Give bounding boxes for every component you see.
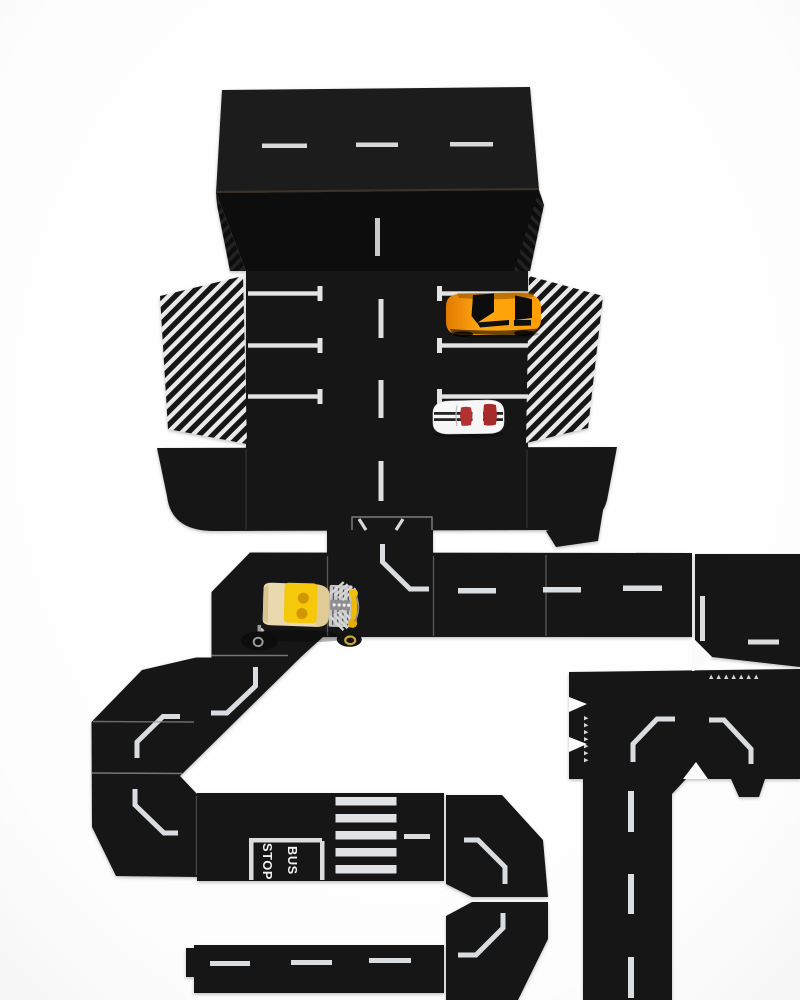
svg-text:BUS: BUS (285, 846, 300, 875)
svg-text:STOP: STOP (260, 843, 275, 880)
